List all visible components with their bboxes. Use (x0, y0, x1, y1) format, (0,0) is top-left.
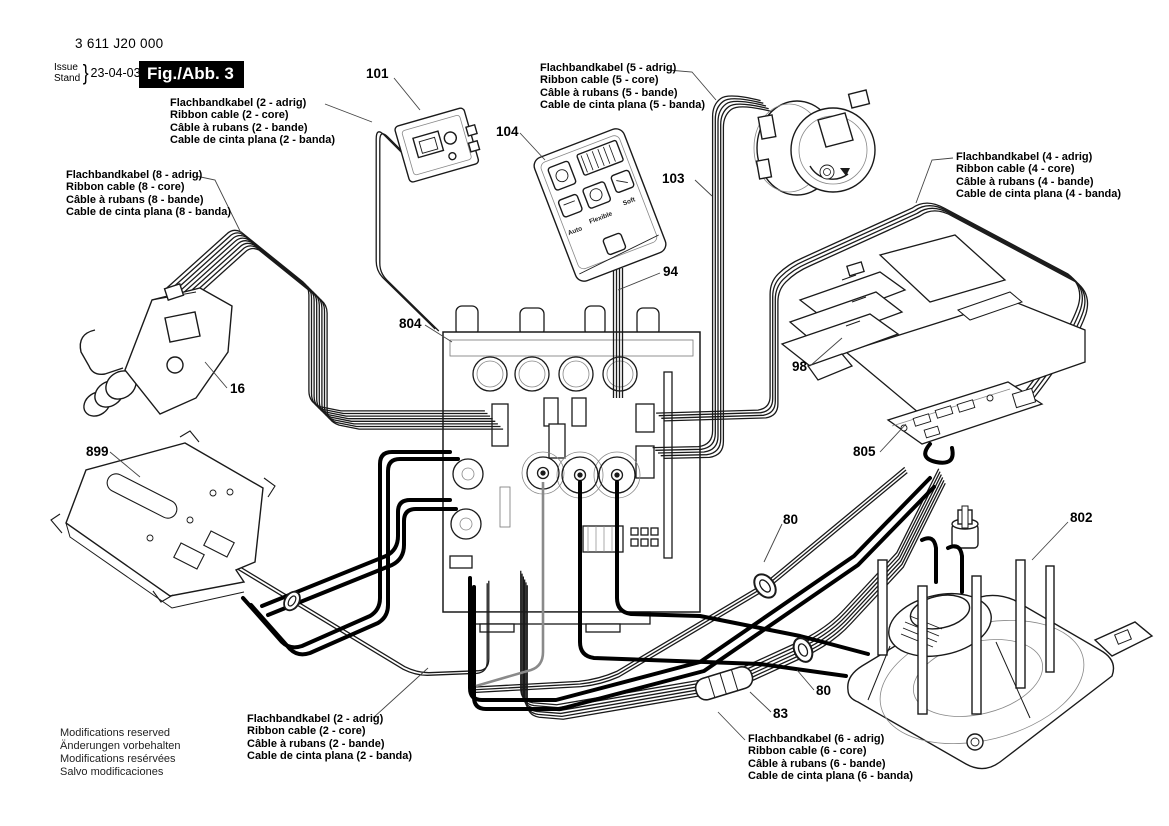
modifications-line-de: Änderungen vorbehalten (60, 740, 180, 753)
component-104-control-panel: Auto Flexible Soft (532, 126, 669, 284)
cable-label-line: Cable de cinta plana (4 - banda) (956, 188, 1121, 200)
cable-label-line: Câble à rubans (6 - bande) (748, 758, 913, 770)
cable-label-line: Flachbandkabel (5 - adrig) (540, 62, 705, 74)
component-899-mounting-plate (51, 431, 275, 608)
part-number-802: 802 (1070, 510, 1093, 525)
modifications-line-es: Salvo modificaciones (60, 766, 180, 779)
cable-label-line: Ribbon cable (2 - core) (247, 725, 412, 737)
cable-label-line: Cable de cinta plana (5 - banda) (540, 99, 705, 111)
issue-date: 23-04-03 (91, 66, 141, 80)
component-16-unit (79, 284, 232, 421)
brace-glyph: } (83, 60, 89, 86)
component-804-main-board (443, 306, 700, 632)
cable-label-line: Cable de cinta plana (2 - banda) (170, 134, 335, 146)
figure-label-box: Fig./Abb. 3 (139, 61, 244, 88)
cable-label-line: Ribbon cable (5 - core) (540, 74, 705, 86)
part-number-104: 104 (496, 124, 519, 139)
issue-stand-block: Issue Stand } 23-04-03 (54, 60, 141, 86)
issue-label: Issue (54, 62, 80, 73)
part-number-101: 101 (366, 66, 389, 81)
cable-label-line: Câble à rubans (5 - bande) (540, 87, 705, 99)
document-part-number: 3 611 J20 000 (75, 36, 163, 51)
component-101-pcb (394, 106, 485, 183)
cable-label-line: Flachbandkabel (6 - adrig) (748, 733, 913, 745)
802-motor-wires (922, 538, 962, 592)
part-number-80-lower: 80 (816, 683, 831, 698)
cable-label-line: Cable de cinta plana (6 - banda) (748, 770, 913, 782)
part-number-805: 805 (853, 444, 876, 459)
cable-label-4core: Flachbandkabel (4 - adrig) Ribbon cable … (956, 151, 1121, 201)
cable-label-line: Cable de cinta plana (2 - banda) (247, 750, 412, 762)
cable-label-line: Câble à rubans (2 - bande) (247, 738, 412, 750)
cable-label-2core-top: Flachbandkabel (2 - adrig) Ribbon cable … (170, 97, 335, 147)
cable-label-6core: Flachbandkabel (6 - adrig) Ribbon cable … (748, 733, 913, 783)
part-number-94: 94 (663, 264, 678, 279)
part-number-80-upper: 80 (783, 512, 798, 527)
modifications-line-en: Modifications reserved (60, 727, 180, 740)
service-diagram-page: Auto Flexible Soft (0, 0, 1169, 826)
cable-label-line: Ribbon cable (6 - core) (748, 745, 913, 757)
cable-label-line: Câble à rubans (2 - bande) (170, 122, 335, 134)
cable-label-line: Ribbon cable (4 - core) (956, 163, 1121, 175)
modifications-notice: Modifications reserved Änderungen vorbeh… (60, 727, 180, 779)
cable-label-5core: Flachbandkabel (5 - adrig) Ribbon cable … (540, 62, 705, 112)
part-number-103: 103 (662, 171, 685, 186)
cable-label-line: Flachbandkabel (8 - adrig) (66, 169, 231, 181)
cable-label-8core: Flachbandkabel (8 - adrig) Ribbon cable … (66, 169, 231, 219)
805-jumper-wire (925, 444, 952, 463)
part-number-16: 16 (230, 381, 245, 396)
part-number-98: 98 (792, 359, 807, 374)
part-number-899: 899 (86, 444, 109, 459)
cable-label-line: Ribbon cable (8 - core) (66, 181, 231, 193)
cable-label-2core-bottom: Flachbandkabel (2 - adrig) Ribbon cable … (247, 713, 412, 763)
cable-label-line: Flachbandkabel (4 - adrig) (956, 151, 1121, 163)
cable-label-line: Flachbandkabel (2 - adrig) (247, 713, 412, 725)
part-number-83: 83 (773, 706, 788, 721)
component-802-base-assembly (848, 506, 1152, 769)
cable-label-line: Ribbon cable (2 - core) (170, 109, 335, 121)
cable-label-line: Câble à rubans (4 - bande) (956, 176, 1121, 188)
part-number-804: 804 (399, 316, 422, 331)
cable-label-line: Cable de cinta plana (8 - banda) (66, 206, 231, 218)
cable-label-line: Câble à rubans (8 - bande) (66, 194, 231, 206)
component-rotary-knob (754, 90, 875, 195)
stand-label: Stand (54, 73, 80, 84)
cable-label-line: Flachbandkabel (2 - adrig) (170, 97, 335, 109)
modifications-line-fr: Modifications resérvées (60, 753, 180, 766)
